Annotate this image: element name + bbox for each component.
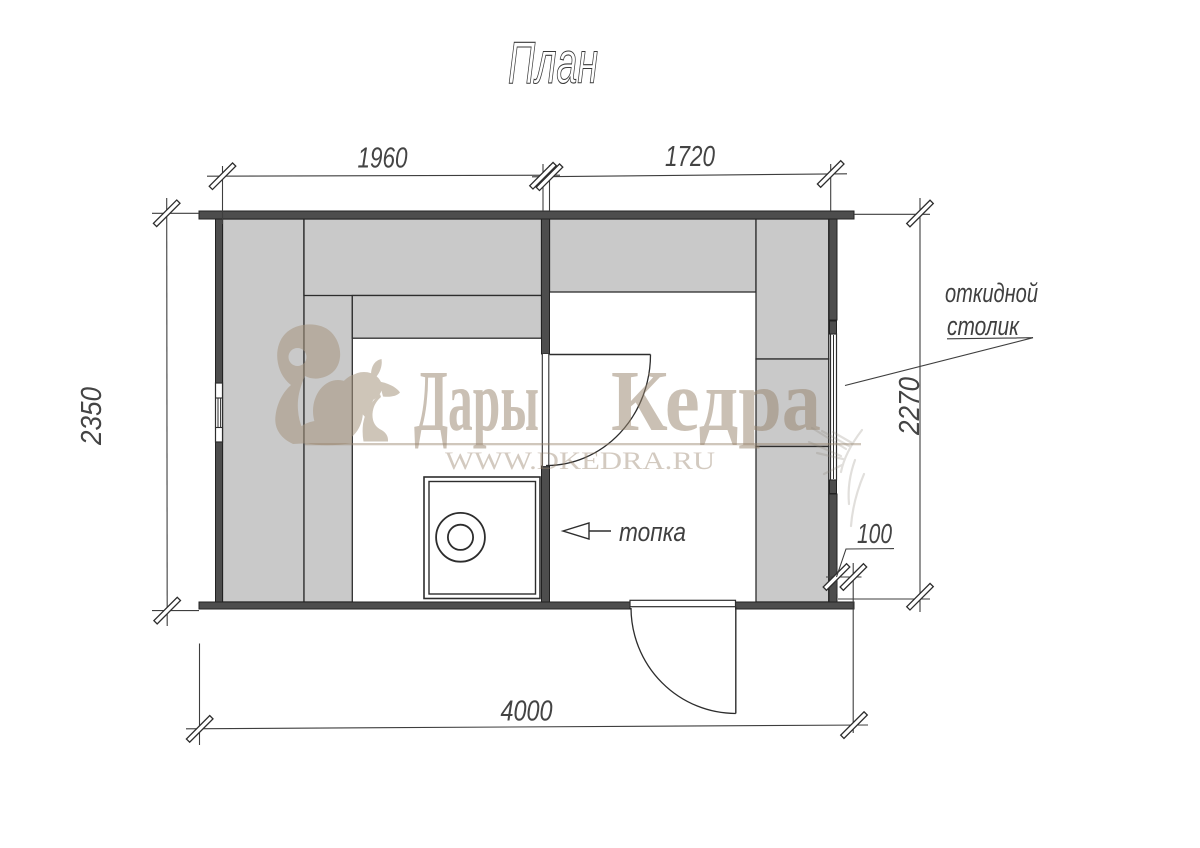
svg-text:2350: 2350 xyxy=(76,387,108,446)
svg-text:столик: столик xyxy=(947,311,1020,341)
svg-text:топка: топка xyxy=(619,517,686,547)
svg-text:4000: 4000 xyxy=(501,696,553,728)
svg-text:WWW.DKEDRA.RU: WWW.DKEDRA.RU xyxy=(445,448,715,475)
svg-text:План: План xyxy=(508,30,598,96)
svg-text:2270: 2270 xyxy=(894,377,926,436)
svg-text:Кедра: Кедра xyxy=(611,352,821,449)
svg-text:1960: 1960 xyxy=(358,143,408,175)
svg-text:Дары: Дары xyxy=(414,352,539,449)
svg-text:откидной: откидной xyxy=(945,278,1038,308)
svg-text:100: 100 xyxy=(857,518,892,549)
svg-text:1720: 1720 xyxy=(665,141,715,173)
